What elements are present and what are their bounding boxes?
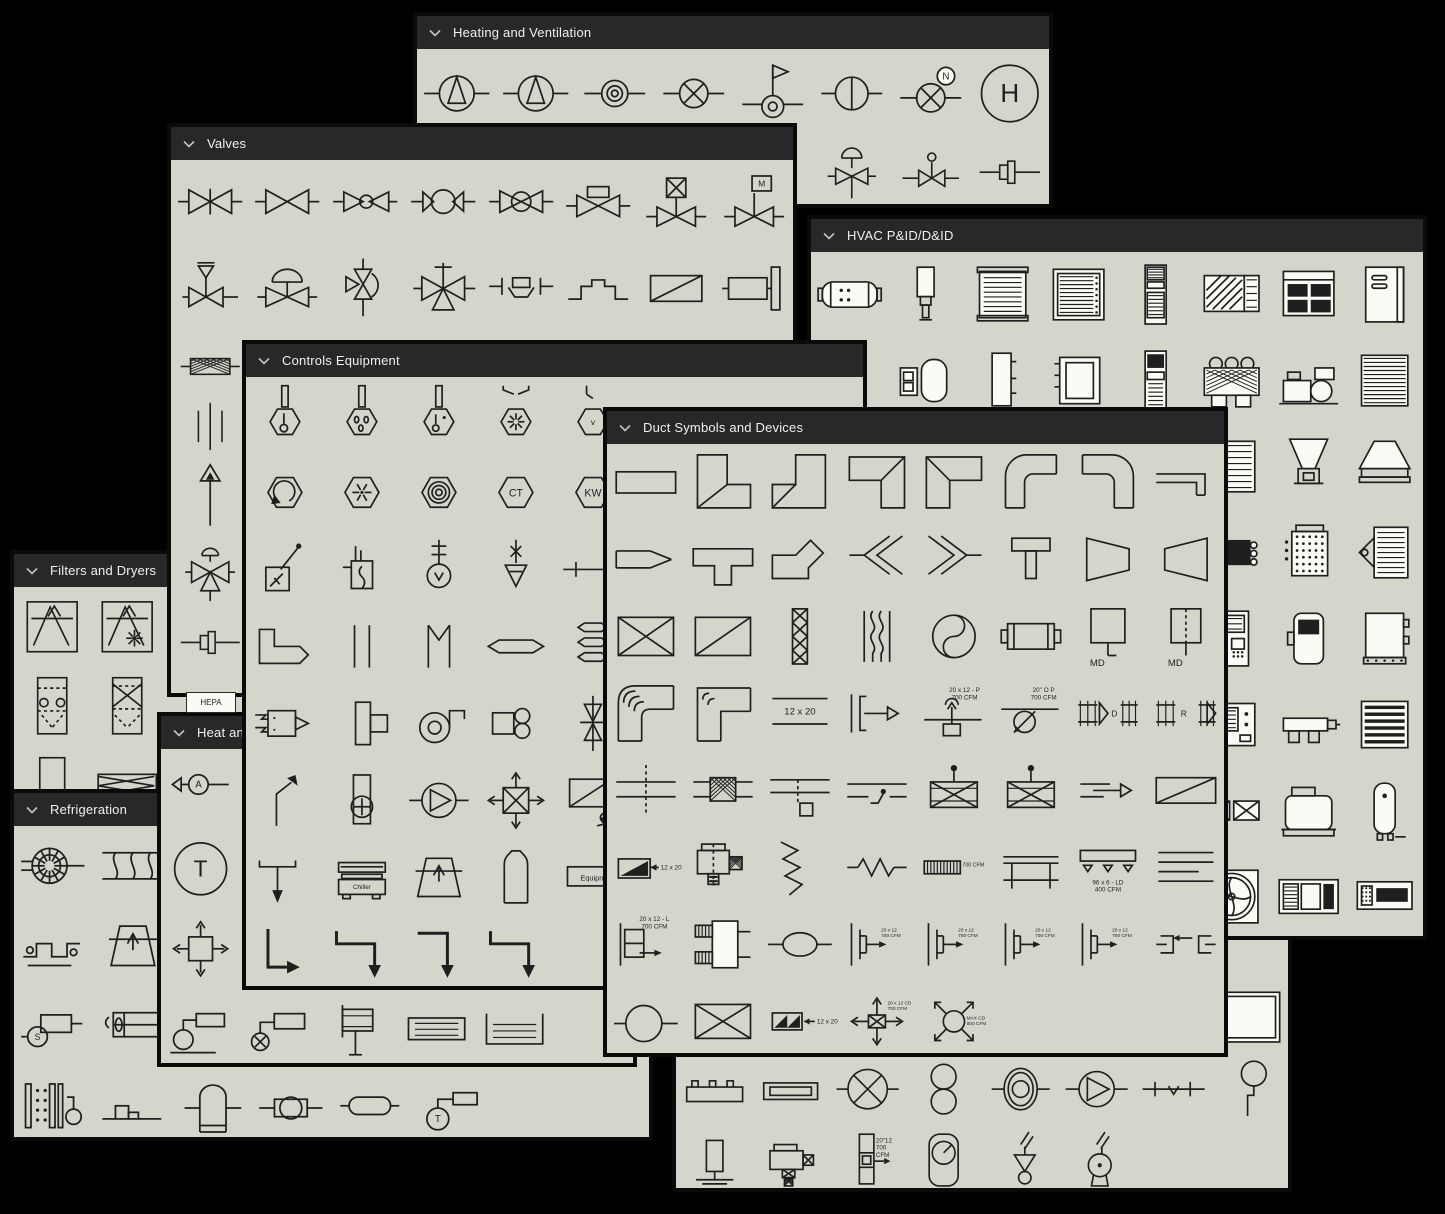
t-circle-rect-symbol[interactable]: T (411, 1066, 490, 1141)
ellipse-inline-symbol[interactable] (761, 906, 838, 983)
svg-text:MAX CD800 CFM: MAX CD800 CFM (967, 1015, 987, 1026)
capsule-flat-symbol[interactable] (477, 608, 554, 685)
capsule-sm-symbol[interactable] (332, 1066, 411, 1141)
hatch-strip-symbol[interactable] (761, 598, 838, 675)
dot-coil-symbol[interactable] (1270, 510, 1347, 596)
chiller-box-symbol[interactable]: Chiller (323, 839, 400, 916)
svg-text:12 x 20: 12 x 20 (817, 1019, 838, 1026)
panel-content: MDMD12 x 2020 x 12 - P700 CFM20" O P700 … (607, 444, 1224, 1057)
drop-grid-symbol[interactable]: 96 x 6 - LD400 CFM (1070, 829, 1147, 906)
three-way-symbol[interactable] (404, 244, 482, 332)
svg-text:D: D (1112, 709, 1118, 719)
chevron-down-icon[interactable] (26, 806, 38, 814)
diaphragm-symbol[interactable] (249, 244, 327, 332)
four-hlines-symbol[interactable] (1147, 829, 1224, 906)
pneumatic-box-symbol[interactable] (246, 685, 323, 762)
cabinet-door-symbol[interactable] (1347, 252, 1424, 338)
svg-text:S: S (34, 1032, 40, 1042)
arrow-line-symbol[interactable] (1070, 752, 1147, 829)
hood-symbol[interactable] (1347, 424, 1424, 510)
bent-arrow-symbol[interactable] (246, 762, 323, 839)
water-heater-symbol[interactable] (1347, 768, 1424, 854)
wall-box-symbol[interactable] (1347, 596, 1424, 682)
svg-text:20 x 12700 CFM: 20 x 12700 CFM (1113, 928, 1133, 939)
box-x-arrows-symbol[interactable] (477, 762, 554, 839)
empty-cell (490, 1066, 569, 1141)
svg-text:20 x 12 - L700 CFM: 20 x 12 - L700 CFM (639, 916, 670, 930)
svg-text:Chiller: Chiller (353, 884, 372, 891)
filter-funnel-symbol[interactable] (982, 1125, 1059, 1192)
panel-header-duct[interactable]: Duct Symbols and Devices (607, 411, 1224, 444)
elbow4-symbol[interactable] (916, 444, 993, 521)
elbow-duct-arrow-symbol[interactable] (246, 608, 323, 685)
hepa-filter-symbol[interactable]: HEPA (186, 692, 236, 713)
boxx-dot-symbol[interactable] (916, 752, 993, 829)
stem-ball-symbol[interactable] (891, 137, 970, 207)
diffuser-round-symbol[interactable]: MAX CD800 CFM (916, 983, 993, 1057)
panel-header-heating-ventilation[interactable]: Heating and Ventilation (417, 16, 1049, 49)
dome-tank-symbol[interactable] (477, 839, 554, 916)
l-pipe-2-symbol[interactable] (323, 916, 400, 990)
panel-title: HVAC P&ID/D&ID (847, 228, 954, 243)
thermo-hex-symbol[interactable] (246, 377, 323, 454)
xbox-stem-symbol[interactable] (638, 160, 716, 244)
pump-circle2-symbol[interactable] (1059, 1053, 1136, 1125)
step-box-symbol[interactable] (93, 1066, 172, 1141)
s-compressor-symbol[interactable]: S (14, 986, 93, 1066)
relay-box-symbol[interactable] (246, 531, 323, 608)
coil-stack-symbol[interactable] (1347, 338, 1424, 424)
angle-half-symbol[interactable] (327, 244, 405, 332)
riser-p-symbol[interactable]: 20 x 12 - P700 CFM (916, 675, 993, 752)
vane-elbow-symbol[interactable] (607, 675, 684, 752)
elbow2-symbol[interactable] (761, 444, 838, 521)
circle-inline-symbol[interactable] (607, 983, 684, 1057)
duct-rect-symbol[interactable] (607, 444, 684, 521)
canvas-background: { "colors":{"page_bg":"#000000","panel_b… (0, 0, 1445, 1214)
relbow-symbol[interactable] (993, 444, 1070, 521)
takeoff-lbl-symbol[interactable]: 20 x 12700 CFM (993, 906, 1070, 983)
box-bowtie-symbol[interactable] (560, 160, 638, 244)
stem-circle-cross-symbol[interactable] (400, 531, 477, 608)
relief-bar-symbol[interactable] (171, 244, 249, 332)
grille-box2-symbol[interactable] (1041, 252, 1118, 338)
elbow-thin-symbol[interactable] (1147, 444, 1224, 521)
svg-text:v: v (591, 417, 596, 427)
svg-text:KW: KW (585, 488, 602, 500)
hex-rings-symbol[interactable] (400, 454, 477, 531)
boot-symbol[interactable] (761, 521, 838, 598)
l-pipe-2-symbol[interactable] (477, 916, 554, 990)
empty-cell (1070, 983, 1147, 1057)
a-circle-arrow-symbol[interactable]: A (161, 749, 240, 829)
bulb-unit-symbol[interactable] (1059, 1125, 1136, 1192)
hex-funnel-symbol[interactable] (477, 377, 554, 454)
duct-heater-cfm-symbol[interactable]: 20"12700CFM (829, 1125, 906, 1192)
coupling-symbol[interactable] (970, 137, 1049, 207)
chevron-down-icon[interactable] (26, 567, 38, 575)
trans-thin-symbol[interactable] (607, 521, 684, 598)
xbox-lg-symbol[interactable] (684, 983, 761, 1057)
md-box2-symbol[interactable]: MD (1147, 598, 1224, 675)
diag-box-symbol[interactable] (684, 598, 761, 675)
empty-cell (1212, 1125, 1289, 1192)
blower-spiral-symbol[interactable] (400, 685, 477, 762)
convector-b-symbol[interactable] (476, 989, 555, 1067)
comp-gear-symbol[interactable] (14, 826, 93, 906)
svg-text:20"12700CFM: 20"12700CFM (876, 1137, 893, 1158)
bench-symbol[interactable] (993, 829, 1070, 906)
panel-header-hvac-pid[interactable]: HVAC P&ID/D&ID (811, 219, 1423, 252)
wye-l-symbol[interactable] (838, 521, 915, 598)
svg-text:20 x 12700 CFM: 20 x 12700 CFM (958, 928, 978, 939)
gate-symbol[interactable] (171, 160, 249, 244)
tower-trap2-symbol[interactable] (400, 839, 477, 916)
hex-star-symbol[interactable] (323, 454, 400, 531)
hex-rotate-symbol[interactable] (246, 454, 323, 531)
hopper-funnel-symbol[interactable] (1270, 424, 1347, 510)
gauge-rrect-symbol[interactable] (906, 1125, 983, 1192)
svg-text:20 x 12 CD700 CFM: 20 x 12 CD700 CFM (888, 1001, 912, 1012)
resist-zig-symbol[interactable] (838, 829, 915, 906)
convector-a-symbol[interactable] (397, 989, 476, 1067)
circlex-rect-symbol[interactable] (240, 989, 319, 1067)
mesh-joint-symbol[interactable] (684, 752, 761, 829)
check-line-symbol[interactable] (1135, 1053, 1212, 1125)
cyl-v-symbol[interactable] (888, 252, 965, 338)
t-circle-big-symbol[interactable]: T (161, 829, 240, 909)
empty-cell (570, 1066, 649, 1141)
svg-text:CT: CT (509, 488, 524, 500)
panel-title: Duct Symbols and Devices (643, 420, 803, 435)
h-circle-symbol[interactable]: H (970, 49, 1049, 137)
takeoff-lbl-symbol[interactable]: 20 x 12700 CFM (916, 906, 993, 983)
takeoff-lbl-symbol[interactable]: 20 x 12700 CFM (1070, 906, 1147, 983)
bellows-symbol[interactable] (838, 598, 915, 675)
x-box-symbol[interactable] (607, 598, 684, 675)
l-pipe-3-symbol[interactable] (400, 916, 477, 990)
drop-triangle-symbol[interactable] (477, 531, 554, 608)
trap-l-symbol[interactable] (1147, 521, 1224, 598)
empty-cell (1147, 983, 1224, 1057)
svg-text:20 x 12700 CFM: 20 x 12700 CFM (881, 928, 901, 939)
louver-stack-symbol[interactable] (1347, 682, 1424, 768)
damper-d-symbol[interactable]: D (1070, 675, 1147, 752)
dryer-dash-symbol[interactable] (14, 667, 90, 747)
ahu-base-symbol[interactable] (1270, 768, 1347, 854)
actuator-cyl-symbol[interactable] (715, 244, 793, 332)
l-pipe-1-symbol[interactable] (246, 916, 323, 990)
fan-x-circle-symbol[interactable] (829, 1053, 906, 1125)
tall-cabinet-symbol[interactable] (1117, 252, 1194, 338)
dbl-inlet-symbol[interactable] (684, 906, 761, 983)
cassette-symbol[interactable] (1347, 854, 1424, 940)
ball-inline-symbol[interactable] (252, 1066, 331, 1141)
ball-symbol[interactable] (404, 160, 482, 244)
filter-box-symbol[interactable] (14, 587, 90, 667)
arrow-up-symbol[interactable] (171, 456, 249, 536)
svg-text:12 x 20: 12 x 20 (784, 707, 815, 718)
elbow3-symbol[interactable] (838, 444, 915, 521)
dbl-circles-symbol[interactable] (906, 1053, 983, 1125)
svg-text:N: N (942, 71, 949, 82)
console-sm-symbol[interactable] (1270, 596, 1347, 682)
svg-text:A: A (195, 780, 202, 791)
tee-duct-symbol[interactable] (684, 521, 761, 598)
elbow1-symbol[interactable] (684, 444, 761, 521)
motor-heater-symbol[interactable] (753, 1125, 830, 1192)
svg-text:700 CFM: 700 CFM (963, 862, 985, 868)
filter-box-star-symbol[interactable] (90, 587, 166, 667)
bowtie-circ-symbol[interactable] (327, 160, 405, 244)
svg-text:Equipm: Equipm (580, 874, 605, 883)
hex-txt-symbol[interactable]: CT (477, 454, 554, 531)
svg-text:20 x 12 - P700 CFM: 20 x 12 - P700 CFM (949, 687, 980, 701)
thermo-hex-dot-symbol[interactable] (400, 377, 477, 454)
svg-text:M: M (758, 179, 765, 189)
panel-title: Refrigeration (50, 802, 127, 817)
relbow2-symbol[interactable] (1070, 444, 1147, 521)
baseboard-symbol[interactable] (676, 1053, 753, 1125)
wedge-label-symbol[interactable]: 12 x 20 (607, 829, 684, 906)
lines-label-symbol[interactable]: 12 x 20 (761, 675, 838, 752)
raised-step-symbol[interactable] (560, 244, 638, 332)
ring-fan-symbol[interactable] (982, 1053, 1059, 1125)
globe-symbol[interactable] (249, 160, 327, 244)
tank-h-symbol[interactable] (811, 252, 888, 338)
rooftop-unit-symbol[interactable] (1270, 854, 1347, 940)
panel-duct: Duct Symbols and DevicesMDMD12 x 2020 x … (603, 407, 1228, 1057)
pump-circle-tri-symbol[interactable] (400, 762, 477, 839)
svg-text:T: T (193, 856, 207, 882)
cross-box-arrows-symbol[interactable] (161, 909, 240, 989)
xwedge-symbol[interactable]: 12 x 20 (761, 983, 838, 1057)
grille-box-symbol[interactable] (964, 252, 1041, 338)
chevron-down-icon[interactable] (173, 729, 185, 737)
four-way-symbol[interactable] (171, 536, 249, 608)
diag-rect-wide-symbol[interactable] (1147, 752, 1224, 829)
takeoff-t-symbol[interactable] (993, 521, 1070, 598)
dash-drop-box-symbol[interactable] (761, 752, 838, 829)
chevron-down-icon[interactable] (619, 424, 631, 432)
dome-tank-sm-symbol[interactable] (173, 1066, 252, 1141)
circle-bowtie-symbol[interactable] (482, 160, 560, 244)
panel-title: Controls Equipment (282, 353, 400, 368)
evap-plates-symbol[interactable] (14, 1066, 93, 1141)
empty-cell (993, 983, 1070, 1057)
panel-title: Heating and Ventilation (453, 25, 591, 40)
panel-header-valves[interactable]: Valves (171, 127, 793, 160)
tee-box-symbol[interactable] (323, 685, 400, 762)
tube-coil-symbol[interactable] (14, 906, 93, 986)
chevron-down-icon[interactable] (429, 29, 441, 37)
zigzag-flex-symbol[interactable] (761, 829, 838, 906)
hatch-label-symbol[interactable]: 700 CFM (916, 829, 993, 906)
window-unit-symbol[interactable] (1194, 252, 1271, 338)
smoke-unit-symbol[interactable] (684, 829, 761, 906)
svg-text:MD: MD (1090, 658, 1105, 669)
svg-text:H: H (1000, 78, 1019, 108)
stat-line-symbol[interactable] (838, 752, 915, 829)
diffuser-4way-symbol[interactable]: 20 x 12 CD700 CFM (838, 983, 915, 1057)
splice-sym-symbol[interactable] (1147, 906, 1224, 983)
panel-title: Valves (207, 136, 246, 151)
attenuator-symbol[interactable] (993, 598, 1070, 675)
packaged-unit-symbol[interactable] (1270, 252, 1347, 338)
chevron-down-icon[interactable] (183, 140, 195, 148)
box-fan-symbol[interactable] (477, 685, 554, 762)
vane-elbow-sq-symbol[interactable] (684, 675, 761, 752)
strainer-symbol[interactable] (171, 332, 249, 400)
wye-r-symbol[interactable] (916, 521, 993, 598)
svg-text:R: R (1180, 709, 1186, 719)
circle-x-n-symbol[interactable]: N (891, 49, 970, 137)
sensor-circle-rect-symbol[interactable] (161, 989, 240, 1067)
box-squiggle-symbol[interactable] (323, 531, 400, 608)
drop-round-symbol[interactable]: 20" O P700 CFM (993, 675, 1070, 752)
yinyang-symbol[interactable] (916, 598, 993, 675)
svg-text:20 x 12700 CFM: 20 x 12700 CFM (1035, 928, 1055, 939)
two-vlines-symbol[interactable] (323, 608, 400, 685)
dryer-x-symbol[interactable] (90, 667, 166, 747)
md-box-symbol[interactable]: MD (1070, 598, 1147, 675)
svg-text:20" O P700 CFM: 20" O P700 CFM (1031, 687, 1057, 701)
diag-rect-symbol[interactable] (638, 244, 716, 332)
fin-bracket-symbol[interactable] (1347, 510, 1424, 596)
pendant-symbol[interactable] (1212, 1053, 1289, 1125)
takeoff-lbl-symbol[interactable]: 20 x 12700 CFM (838, 906, 915, 983)
svg-text:MD: MD (1167, 658, 1182, 669)
damper-r-symbol[interactable]: R (1147, 675, 1224, 752)
trap-r-symbol[interactable] (1070, 521, 1147, 598)
chevron-down-icon[interactable] (258, 357, 270, 365)
flanged-boat-symbol[interactable] (482, 244, 560, 332)
empty-cell (1135, 1125, 1212, 1192)
chiller-skid-symbol[interactable] (1270, 338, 1347, 424)
three-vlines-symbol[interactable] (171, 392, 249, 460)
endcap-arrow-symbol[interactable] (838, 675, 915, 752)
vert-heater-symbol[interactable] (676, 1125, 753, 1192)
tee-down-arrow-symbol[interactable] (246, 839, 323, 916)
panel-header-controls[interactable]: Controls Equipment (246, 344, 863, 377)
circle-vline-symbol[interactable] (812, 49, 891, 137)
manifold-symbol[interactable] (1270, 682, 1347, 768)
m-lines-symbol[interactable] (400, 608, 477, 685)
panel-title: Filters and Dryers (50, 563, 156, 578)
m-flag-symbol[interactable]: M (715, 160, 793, 244)
relief-dome-symbol[interactable] (812, 137, 891, 207)
box-l-symbol[interactable]: 20 x 12 - L700 CFM (607, 906, 684, 983)
radiator-lines-symbol[interactable] (318, 989, 397, 1067)
cross-dash-symbol[interactable] (607, 752, 684, 829)
tank-circle-plus-symbol[interactable] (323, 762, 400, 839)
fin-tube-symbol[interactable] (753, 1053, 830, 1125)
svg-text:12 x 20: 12 x 20 (660, 865, 681, 872)
coupling-symbol[interactable] (171, 608, 249, 676)
thermo-hex-drops-symbol[interactable] (323, 377, 400, 454)
chevron-down-icon[interactable] (823, 232, 835, 240)
svg-text:T: T (434, 1114, 440, 1125)
boxx-dot-symbol[interactable] (993, 752, 1070, 829)
svg-text:96 x 6 - LD400 CFM: 96 x 6 - LD400 CFM (1093, 879, 1125, 893)
